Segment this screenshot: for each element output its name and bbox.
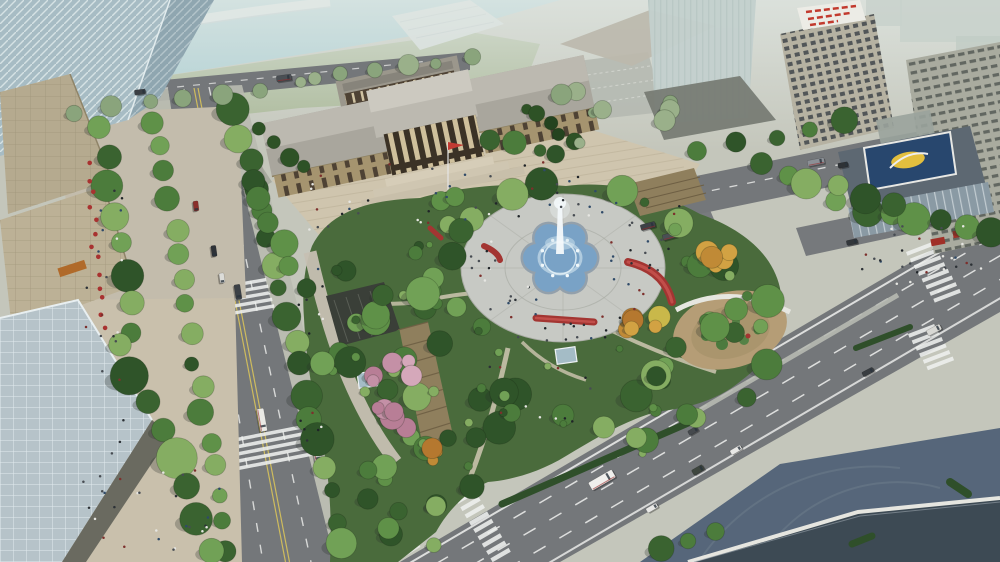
tree bbox=[725, 271, 735, 281]
cafe-umbrella bbox=[96, 254, 101, 259]
person bbox=[950, 257, 953, 260]
tree bbox=[286, 330, 310, 354]
tree bbox=[438, 242, 466, 270]
glass-pavilion-a bbox=[555, 347, 577, 365]
person bbox=[583, 324, 586, 327]
tree bbox=[325, 483, 340, 498]
person bbox=[594, 190, 597, 193]
tree bbox=[224, 125, 252, 153]
person bbox=[649, 264, 652, 267]
person bbox=[564, 417, 567, 420]
tree bbox=[155, 186, 180, 211]
tree bbox=[552, 128, 565, 141]
person bbox=[633, 308, 636, 311]
scene-canvas bbox=[0, 0, 1000, 562]
tree bbox=[687, 141, 706, 160]
cafe-umbrella bbox=[93, 232, 98, 237]
tree bbox=[429, 386, 439, 396]
person bbox=[188, 526, 191, 529]
tree bbox=[649, 320, 662, 333]
person bbox=[449, 185, 452, 188]
tree bbox=[313, 456, 336, 479]
person bbox=[660, 239, 663, 242]
tree bbox=[626, 428, 647, 449]
tree bbox=[751, 285, 784, 318]
person bbox=[514, 299, 517, 302]
cafe-umbrella bbox=[89, 245, 94, 250]
person bbox=[308, 332, 311, 335]
tree bbox=[654, 110, 675, 131]
tree bbox=[430, 58, 441, 69]
tree bbox=[791, 168, 822, 199]
person bbox=[507, 302, 510, 305]
person bbox=[94, 518, 97, 521]
person bbox=[419, 221, 422, 224]
person bbox=[642, 293, 645, 296]
person bbox=[102, 536, 105, 539]
tree bbox=[544, 363, 551, 370]
cafe-umbrella bbox=[103, 326, 108, 331]
tree bbox=[88, 116, 111, 139]
tree bbox=[403, 383, 431, 411]
person bbox=[205, 526, 208, 529]
person bbox=[162, 471, 165, 474]
tree bbox=[181, 323, 203, 345]
tree bbox=[390, 502, 408, 520]
tree bbox=[593, 101, 611, 119]
tree bbox=[367, 62, 382, 77]
person bbox=[201, 530, 204, 533]
tree bbox=[464, 462, 472, 470]
person bbox=[306, 439, 309, 442]
person bbox=[601, 315, 604, 318]
tree bbox=[352, 353, 360, 361]
person bbox=[527, 285, 530, 288]
person bbox=[542, 161, 545, 164]
tree bbox=[120, 291, 144, 315]
person bbox=[488, 267, 491, 270]
tree bbox=[466, 428, 486, 448]
person bbox=[499, 366, 502, 369]
tree bbox=[333, 66, 348, 81]
person bbox=[890, 228, 893, 231]
person bbox=[901, 225, 904, 228]
tree bbox=[750, 152, 772, 174]
person bbox=[488, 213, 491, 216]
person bbox=[673, 213, 676, 216]
person bbox=[544, 327, 547, 330]
tree bbox=[100, 96, 121, 117]
person bbox=[563, 323, 566, 326]
person bbox=[656, 269, 659, 272]
person bbox=[348, 200, 351, 203]
tree bbox=[308, 72, 321, 85]
tree bbox=[372, 402, 384, 414]
person bbox=[590, 337, 593, 340]
person bbox=[138, 491, 141, 494]
person bbox=[942, 255, 945, 258]
tree bbox=[422, 438, 443, 459]
person bbox=[118, 378, 121, 381]
person bbox=[464, 173, 467, 176]
cafe-umbrella bbox=[97, 273, 102, 278]
vehicle-windshield bbox=[221, 280, 225, 283]
person bbox=[122, 419, 125, 422]
tree bbox=[111, 233, 131, 253]
vehicle-car bbox=[191, 201, 199, 213]
person bbox=[589, 387, 592, 390]
cafe-umbrella bbox=[88, 205, 93, 210]
person bbox=[182, 474, 185, 477]
person bbox=[509, 299, 512, 302]
person bbox=[560, 206, 563, 209]
person bbox=[327, 225, 330, 228]
person bbox=[629, 249, 632, 252]
person bbox=[320, 426, 323, 429]
tree bbox=[427, 331, 453, 357]
tree bbox=[205, 454, 226, 475]
person bbox=[577, 203, 580, 206]
person bbox=[157, 538, 160, 541]
person bbox=[298, 433, 301, 436]
tree bbox=[168, 244, 189, 265]
person bbox=[120, 209, 123, 212]
tree bbox=[332, 265, 343, 276]
tree bbox=[295, 77, 306, 88]
person bbox=[123, 545, 126, 548]
person bbox=[510, 316, 513, 319]
person bbox=[943, 268, 946, 271]
person bbox=[99, 475, 102, 478]
person bbox=[896, 282, 899, 285]
person bbox=[101, 229, 104, 232]
person bbox=[321, 285, 324, 288]
tree bbox=[426, 496, 446, 516]
person bbox=[678, 205, 681, 208]
person bbox=[101, 314, 104, 317]
tree bbox=[680, 533, 696, 549]
tree bbox=[174, 269, 194, 289]
person bbox=[955, 265, 958, 268]
person bbox=[100, 209, 103, 212]
person bbox=[105, 276, 108, 279]
tree bbox=[167, 219, 190, 242]
person bbox=[116, 237, 119, 240]
tree bbox=[496, 178, 528, 210]
person bbox=[348, 208, 351, 211]
person bbox=[185, 525, 188, 528]
tree bbox=[669, 223, 682, 236]
person bbox=[965, 262, 968, 265]
tree bbox=[607, 175, 638, 206]
tree bbox=[831, 107, 858, 134]
vehicle-windshield bbox=[142, 90, 145, 94]
person bbox=[484, 279, 487, 282]
person bbox=[535, 298, 538, 301]
cafe-umbrella bbox=[100, 295, 105, 300]
tree bbox=[136, 390, 160, 414]
person bbox=[471, 267, 474, 270]
tree bbox=[426, 538, 441, 553]
person bbox=[172, 548, 175, 551]
tree bbox=[529, 105, 545, 121]
tree bbox=[185, 357, 199, 371]
tree bbox=[297, 160, 310, 173]
person bbox=[604, 336, 607, 339]
person bbox=[427, 221, 430, 224]
tree bbox=[551, 84, 572, 105]
tree bbox=[460, 474, 485, 499]
tree bbox=[534, 145, 546, 157]
person bbox=[918, 237, 921, 240]
tree bbox=[270, 230, 298, 258]
tree bbox=[700, 313, 729, 342]
person bbox=[865, 253, 868, 256]
tree bbox=[647, 366, 667, 386]
person bbox=[500, 412, 503, 415]
tree bbox=[426, 242, 432, 248]
tree bbox=[153, 160, 174, 181]
person bbox=[103, 492, 106, 495]
tree bbox=[742, 291, 752, 301]
tree bbox=[267, 136, 280, 149]
person bbox=[576, 336, 579, 339]
person bbox=[316, 208, 319, 211]
tree bbox=[378, 518, 399, 539]
person bbox=[546, 339, 549, 342]
person bbox=[119, 441, 122, 444]
person bbox=[584, 376, 587, 379]
person bbox=[565, 338, 568, 341]
person bbox=[940, 227, 943, 230]
person bbox=[647, 240, 650, 243]
person bbox=[613, 278, 616, 281]
tree bbox=[502, 131, 526, 155]
tree bbox=[769, 130, 785, 146]
tree bbox=[624, 321, 639, 336]
tree bbox=[574, 138, 585, 149]
tree bbox=[287, 351, 311, 375]
person bbox=[879, 259, 882, 262]
tree bbox=[91, 170, 123, 202]
person bbox=[573, 214, 576, 217]
tree bbox=[447, 297, 467, 317]
person bbox=[568, 180, 571, 183]
tree bbox=[547, 145, 565, 163]
person bbox=[569, 323, 572, 326]
person bbox=[322, 318, 325, 321]
person bbox=[893, 233, 896, 236]
spray-plume-halo bbox=[550, 199, 570, 219]
person bbox=[88, 507, 91, 510]
tree bbox=[359, 461, 377, 479]
person bbox=[317, 429, 320, 432]
person bbox=[556, 192, 559, 195]
person bbox=[489, 366, 492, 369]
person bbox=[85, 326, 88, 329]
person bbox=[470, 255, 473, 258]
person bbox=[121, 197, 124, 200]
person bbox=[610, 241, 613, 244]
person bbox=[644, 252, 647, 255]
tree bbox=[445, 187, 464, 206]
person bbox=[116, 331, 119, 334]
person bbox=[916, 271, 919, 274]
person bbox=[628, 224, 631, 227]
person bbox=[82, 480, 85, 483]
vehicle-windshield bbox=[195, 208, 199, 211]
tree bbox=[109, 334, 132, 357]
tree bbox=[544, 116, 558, 130]
person bbox=[612, 255, 615, 258]
tree bbox=[101, 203, 129, 231]
tree bbox=[111, 260, 144, 293]
person bbox=[416, 219, 419, 222]
person bbox=[318, 313, 321, 316]
tree bbox=[449, 218, 474, 243]
tree bbox=[850, 183, 880, 213]
courtyard-red-flowers bbox=[746, 334, 751, 339]
person bbox=[100, 335, 103, 338]
tree bbox=[144, 94, 158, 108]
tree bbox=[477, 384, 486, 393]
person bbox=[155, 529, 158, 532]
tree bbox=[367, 375, 379, 387]
tree bbox=[176, 294, 194, 312]
person bbox=[445, 196, 448, 199]
person bbox=[479, 274, 482, 277]
tree bbox=[280, 148, 299, 167]
person bbox=[510, 295, 513, 298]
person bbox=[435, 192, 438, 195]
person bbox=[478, 260, 481, 263]
tree bbox=[465, 419, 473, 427]
person bbox=[310, 187, 313, 190]
tree bbox=[649, 404, 657, 412]
person bbox=[317, 268, 320, 271]
tree bbox=[440, 430, 457, 447]
person bbox=[431, 167, 434, 170]
tree bbox=[495, 349, 503, 357]
tree bbox=[726, 132, 746, 152]
tree bbox=[174, 473, 200, 499]
person bbox=[175, 495, 178, 498]
tree bbox=[882, 193, 906, 217]
person bbox=[303, 428, 306, 431]
tree bbox=[480, 130, 500, 150]
person bbox=[627, 283, 630, 286]
tree bbox=[270, 280, 286, 296]
tree bbox=[246, 187, 270, 211]
person bbox=[113, 189, 116, 192]
person bbox=[119, 478, 122, 481]
person bbox=[573, 325, 576, 328]
person bbox=[490, 240, 493, 243]
person bbox=[489, 175, 492, 178]
tree bbox=[214, 512, 231, 529]
person bbox=[111, 452, 114, 455]
person bbox=[320, 175, 323, 178]
person bbox=[97, 250, 100, 253]
person bbox=[115, 340, 118, 343]
person bbox=[534, 313, 537, 316]
tree bbox=[352, 316, 360, 324]
person bbox=[615, 202, 618, 205]
person bbox=[605, 329, 608, 332]
person bbox=[961, 243, 964, 246]
person bbox=[194, 469, 197, 472]
person bbox=[308, 228, 311, 231]
person bbox=[218, 488, 221, 491]
tree bbox=[754, 319, 768, 333]
person bbox=[980, 267, 983, 270]
person bbox=[341, 213, 344, 216]
tree bbox=[475, 327, 483, 335]
tree bbox=[360, 387, 370, 397]
tree bbox=[616, 345, 623, 352]
tree bbox=[385, 402, 404, 421]
tree bbox=[372, 285, 393, 306]
tree bbox=[334, 347, 365, 378]
tree bbox=[409, 246, 423, 260]
cafe-umbrella bbox=[87, 179, 92, 184]
tree bbox=[648, 536, 674, 562]
person bbox=[486, 250, 489, 253]
person bbox=[317, 226, 320, 229]
person bbox=[909, 262, 912, 265]
tree bbox=[464, 49, 481, 66]
tree bbox=[212, 84, 233, 105]
tree bbox=[382, 353, 403, 374]
person bbox=[631, 222, 634, 225]
tree bbox=[151, 136, 170, 155]
person bbox=[571, 420, 574, 423]
person bbox=[562, 199, 565, 202]
person bbox=[588, 214, 591, 217]
person bbox=[962, 225, 965, 228]
tree bbox=[110, 357, 148, 395]
tree bbox=[252, 122, 265, 135]
person bbox=[549, 204, 552, 207]
person bbox=[495, 202, 498, 205]
person bbox=[909, 281, 912, 284]
person bbox=[489, 308, 492, 311]
person bbox=[588, 206, 591, 209]
tree bbox=[751, 349, 782, 380]
person bbox=[298, 303, 301, 306]
person bbox=[861, 268, 864, 271]
person bbox=[299, 419, 302, 422]
tree bbox=[358, 489, 379, 510]
person bbox=[357, 212, 360, 215]
person bbox=[101, 370, 104, 373]
tree bbox=[187, 399, 214, 426]
person bbox=[601, 211, 604, 214]
person bbox=[556, 183, 559, 186]
person bbox=[367, 199, 370, 202]
tree bbox=[180, 503, 213, 536]
tree bbox=[401, 365, 422, 386]
tree bbox=[199, 538, 224, 562]
person bbox=[970, 263, 973, 266]
person bbox=[557, 367, 560, 370]
tree bbox=[253, 83, 268, 98]
person bbox=[873, 257, 876, 260]
tree bbox=[174, 90, 192, 108]
tree bbox=[499, 391, 509, 401]
tree bbox=[828, 175, 848, 195]
tree bbox=[525, 167, 558, 200]
